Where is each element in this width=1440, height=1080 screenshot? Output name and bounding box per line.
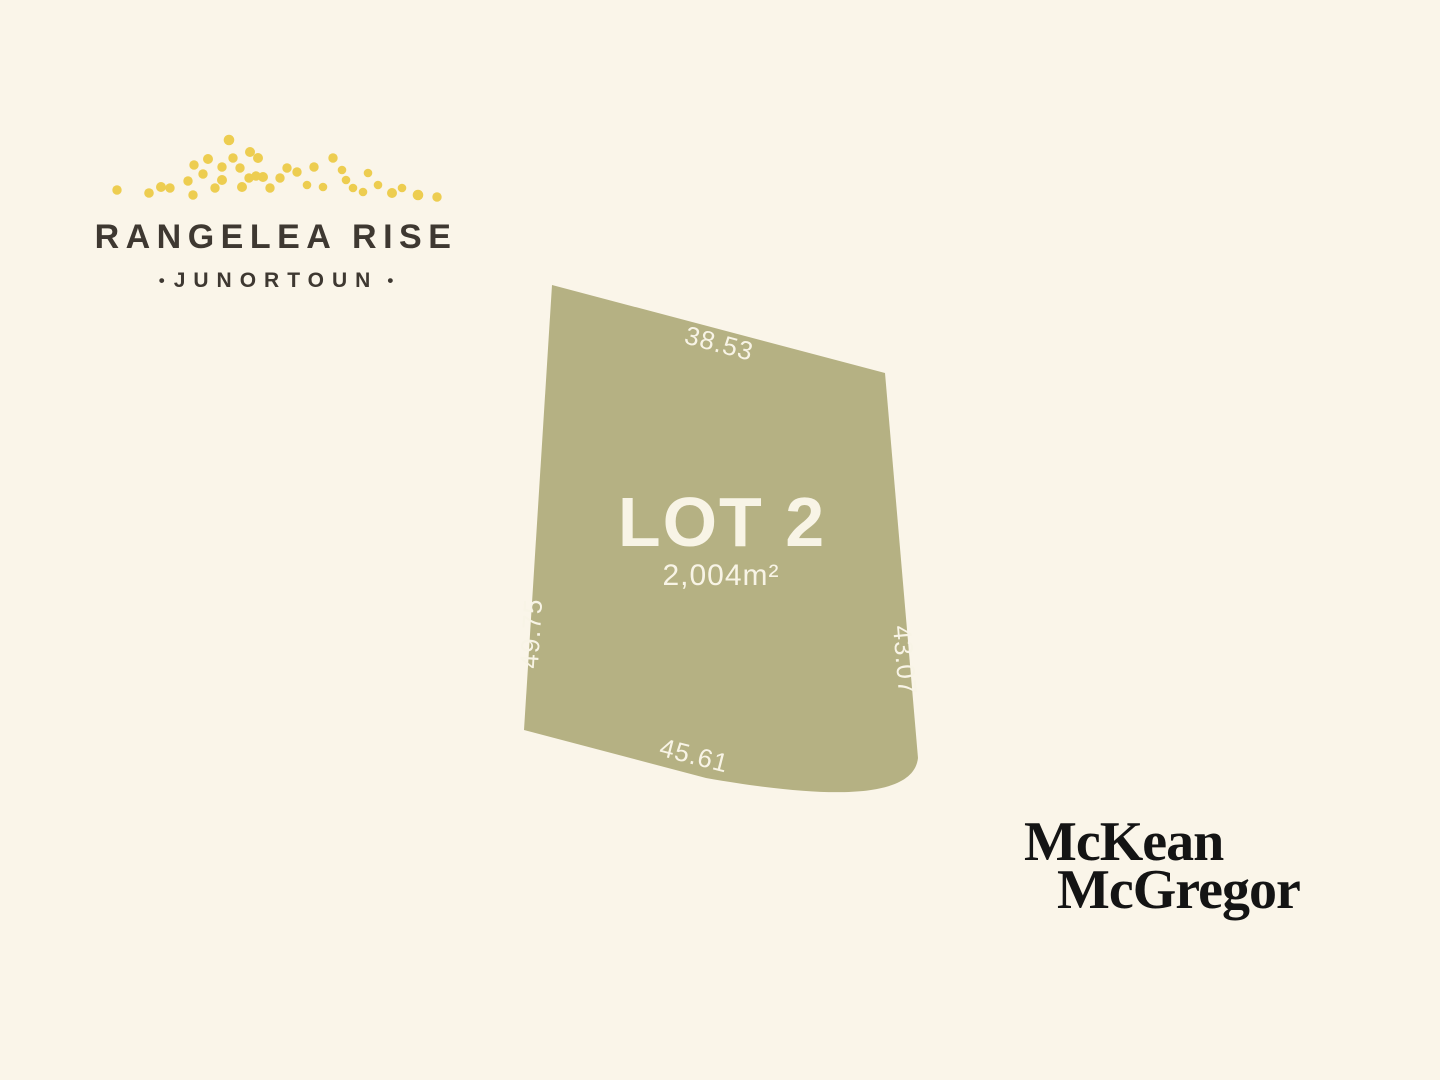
lot-diagram: LOT 2 2,004m² 38.53 43.07 45.61 49.75	[495, 270, 955, 815]
estate-logo-dots-icon	[102, 128, 450, 206]
separator-dot-left: •	[159, 270, 165, 291]
lot-2-area: 2,004m²	[662, 559, 779, 592]
estate-name: RANGELEA RISE	[90, 220, 462, 254]
lot-2-label: LOT 2	[618, 483, 826, 561]
estate-location-label: JUNORTOUN	[174, 270, 379, 291]
agency-name-line2: McGregor	[1057, 866, 1300, 914]
estate-logo: RANGELEA RISE • JUNORTOUN •	[90, 128, 462, 291]
lot-plan-canvas: RANGELEA RISE • JUNORTOUN • LOT 2 2,004m…	[0, 0, 1440, 1080]
estate-location: • JUNORTOUN •	[90, 270, 462, 291]
dimension-right: 43.07	[887, 624, 923, 696]
dimension-left: 49.75	[514, 598, 548, 670]
agency-logo: McKean McGregor	[1024, 818, 1300, 914]
separator-dot-right: •	[387, 270, 393, 291]
